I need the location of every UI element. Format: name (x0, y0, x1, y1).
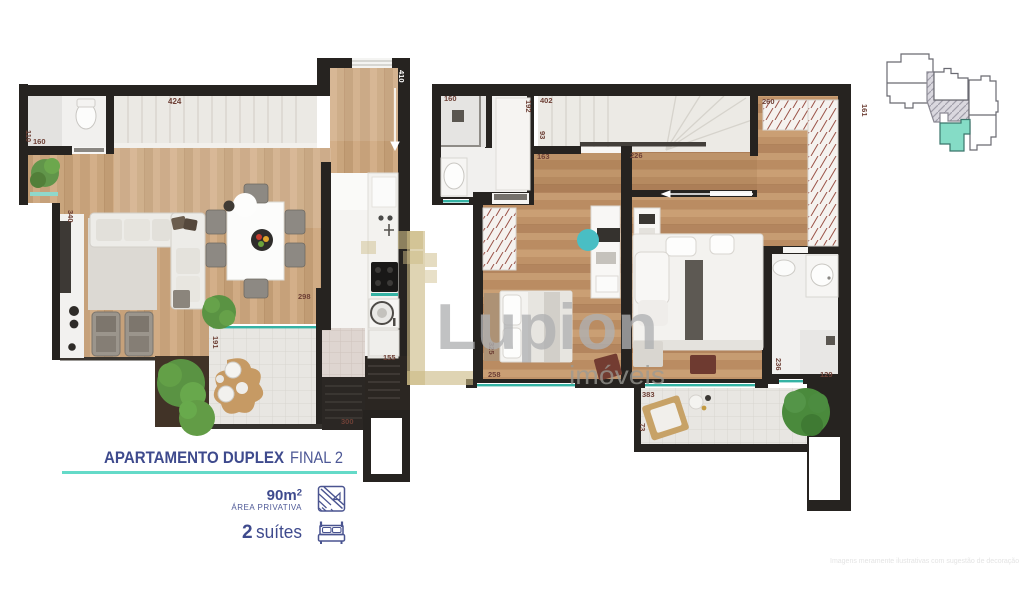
svg-text:410: 410 (397, 70, 406, 83)
svg-text:258: 258 (488, 370, 501, 379)
svg-text:2: 2 (242, 522, 253, 543)
svg-text:90m2: 90m2 (267, 487, 302, 504)
svg-text:191: 191 (211, 336, 220, 349)
svg-text:suítes: suítes (256, 522, 302, 542)
svg-text:192: 192 (524, 100, 533, 113)
svg-text:Imagens meramente ilustrativas: Imagens meramente ilustrativas com suges… (830, 558, 1019, 565)
svg-text:155: 155 (383, 353, 396, 362)
svg-text:260: 260 (762, 97, 775, 106)
svg-text:163: 163 (537, 152, 550, 161)
svg-text:APARTAMENTO DUPLEX: APARTAMENTO DUPLEX (104, 448, 285, 467)
svg-text:129: 129 (820, 370, 833, 379)
svg-text:300: 300 (341, 417, 354, 426)
svg-text:imóveis: imóveis (569, 360, 665, 390)
svg-text:424: 424 (168, 97, 182, 106)
svg-text:383: 383 (642, 390, 655, 399)
svg-text:93: 93 (538, 131, 547, 139)
svg-text:226: 226 (630, 151, 643, 160)
svg-text:340: 340 (66, 210, 75, 223)
svg-text:FINAL 2: FINAL 2 (290, 448, 343, 467)
svg-text:ÁREA PRIVATIVA: ÁREA PRIVATIVA (231, 503, 302, 512)
svg-text:402: 402 (540, 96, 553, 105)
svg-text:110: 110 (24, 130, 33, 142)
svg-text:Lupion: Lupion (436, 290, 658, 363)
svg-text:298: 298 (298, 292, 311, 301)
svg-text:160: 160 (444, 94, 457, 103)
svg-text:73: 73 (638, 423, 647, 431)
svg-text:160: 160 (33, 137, 46, 146)
svg-text:161: 161 (860, 104, 869, 117)
svg-text:236: 236 (774, 358, 783, 371)
